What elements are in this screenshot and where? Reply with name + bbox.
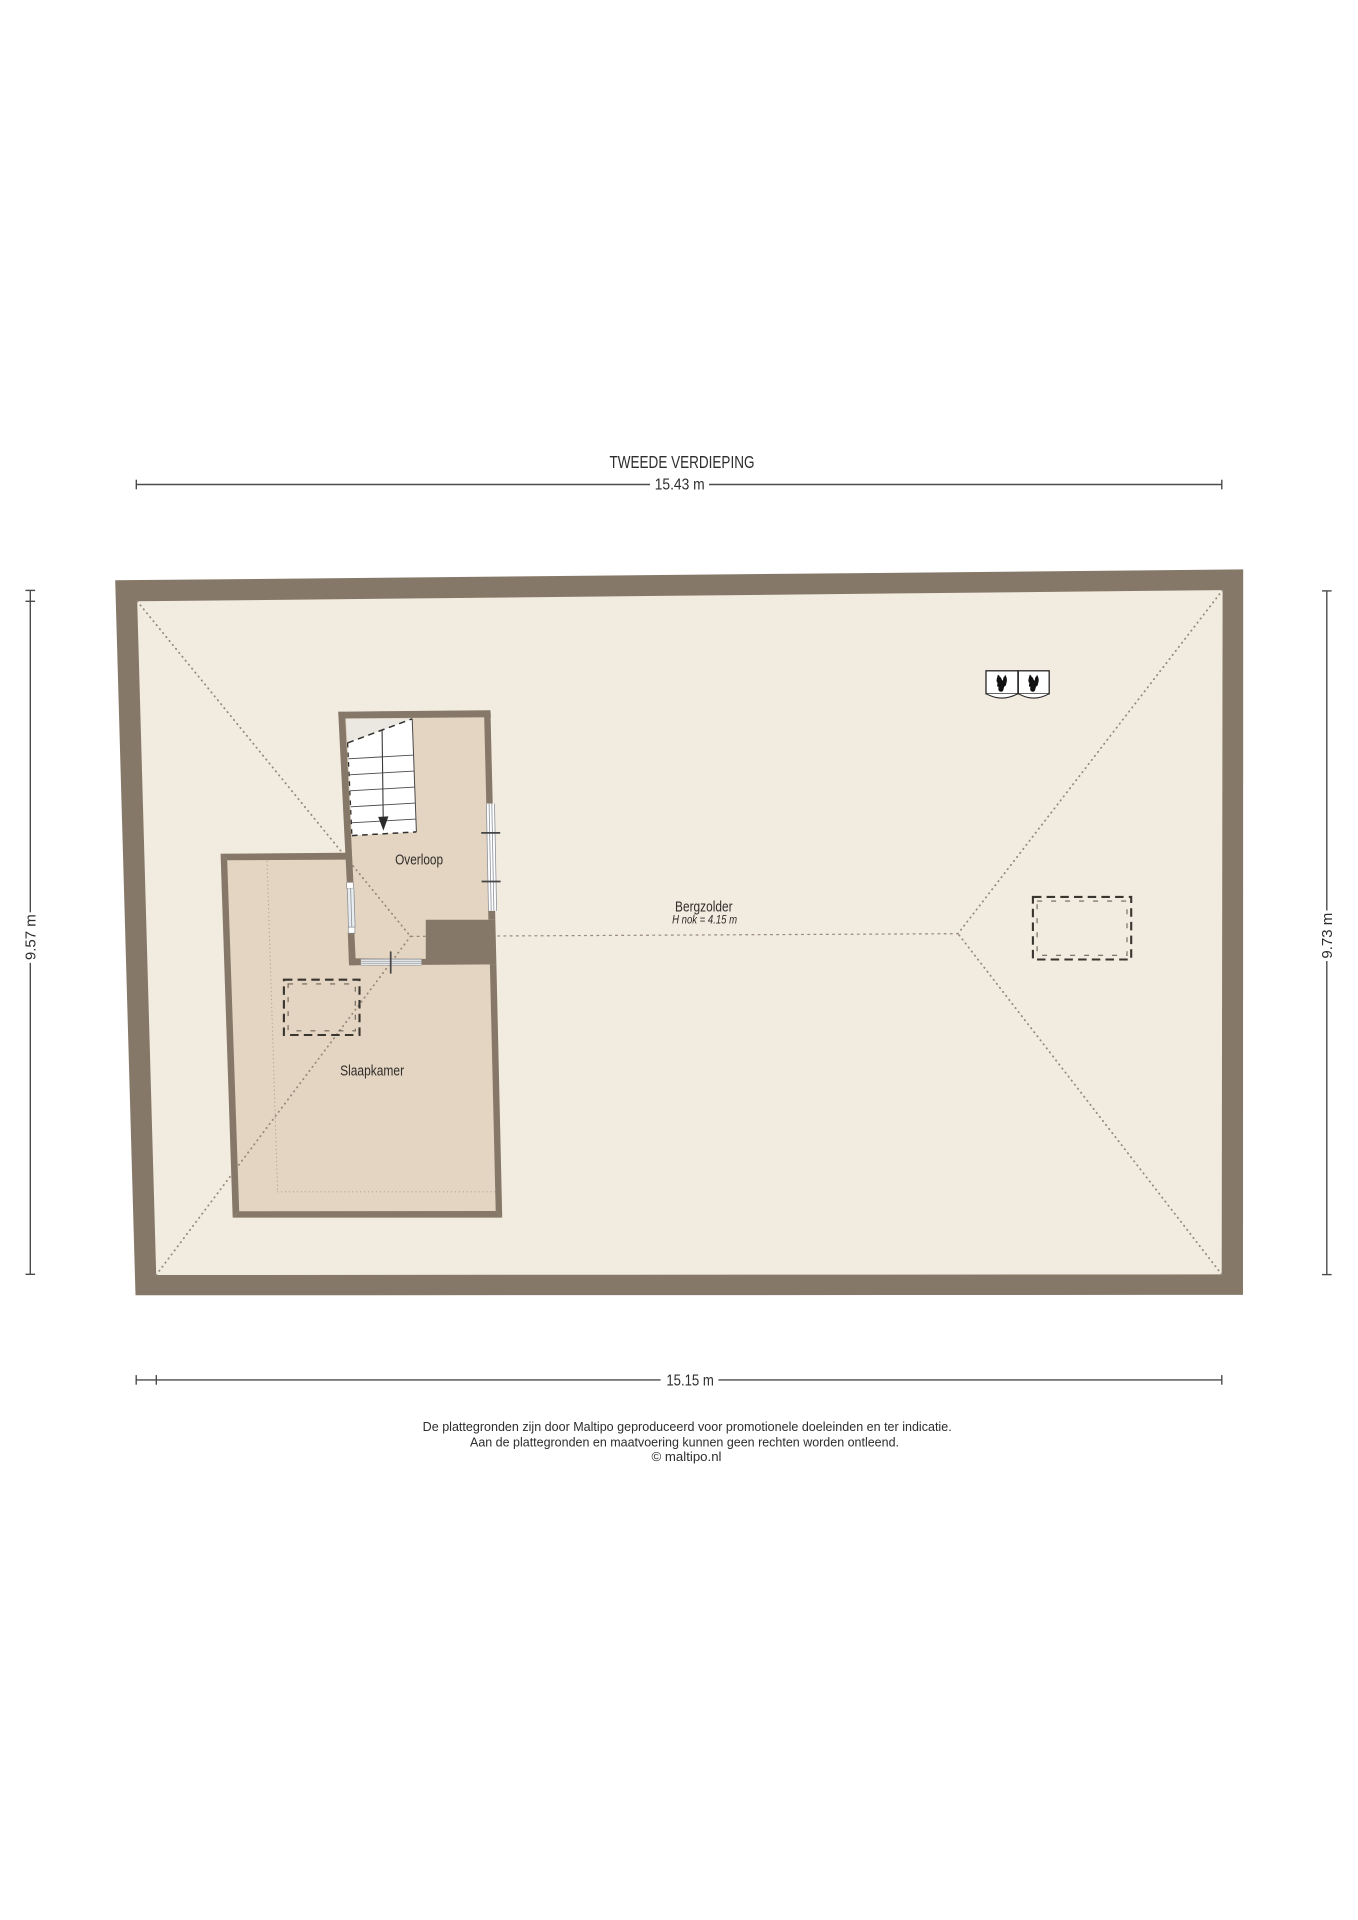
svg-text:Slaapkamer: Slaapkamer: [340, 1063, 404, 1079]
svg-text:Overloop: Overloop: [395, 852, 443, 868]
svg-text:TWEEDE VERDIEPING: TWEEDE VERDIEPING: [610, 452, 755, 472]
svg-text:De plattegronden zijn door Mal: De plattegronden zijn door Maltipo gepro…: [423, 1420, 952, 1434]
svg-text:© maltipo.nl: © maltipo.nl: [652, 1450, 722, 1464]
svg-text:Aan de plattegronden en maatvo: Aan de plattegronden en maatvoering kunn…: [470, 1435, 899, 1449]
svg-text:9.57 m: 9.57 m: [23, 914, 40, 960]
svg-text:Bergzolder: Bergzolder: [675, 900, 733, 916]
svg-text:H nok = 4.15 m: H nok = 4.15 m: [672, 914, 737, 926]
svg-text:15.43 m: 15.43 m: [655, 477, 705, 494]
svg-text:15.15 m: 15.15 m: [666, 1372, 714, 1389]
svg-text:9.73 m: 9.73 m: [1319, 913, 1336, 959]
